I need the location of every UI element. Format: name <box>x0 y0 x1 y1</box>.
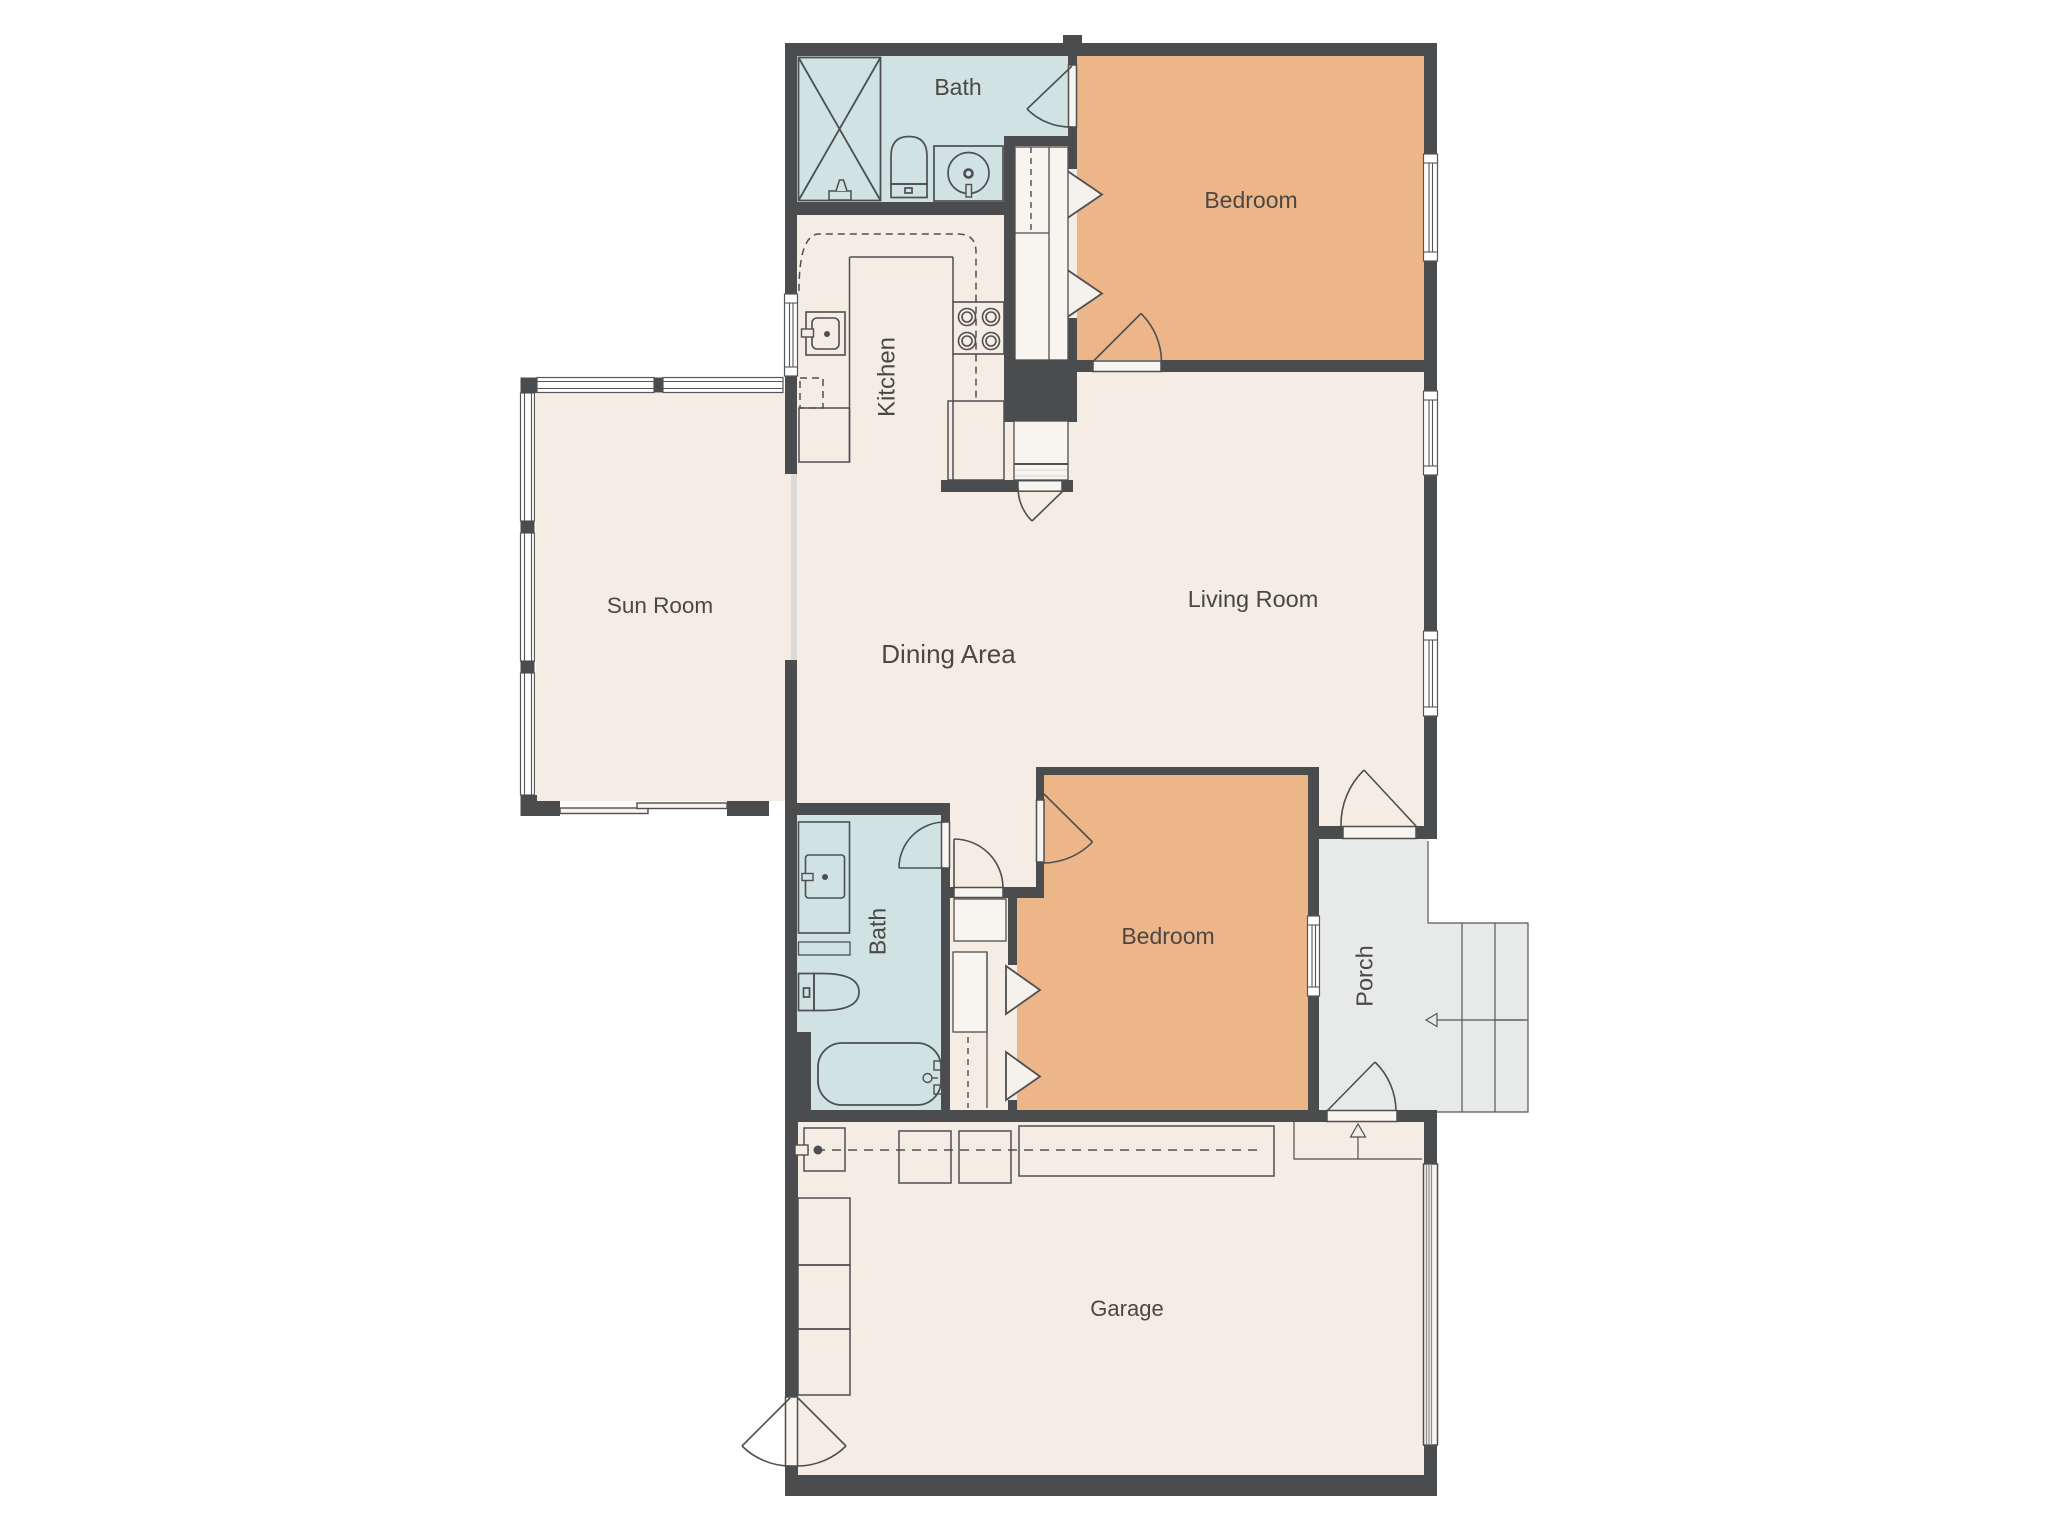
svg-text:Living Room: Living Room <box>1188 586 1319 612</box>
svg-text:Bedroom: Bedroom <box>1204 187 1297 213</box>
svg-text:Sun Room: Sun Room <box>607 593 713 618</box>
svg-text:Garage: Garage <box>1090 1296 1163 1321</box>
svg-text:Bedroom: Bedroom <box>1121 923 1214 949</box>
svg-text:Bath: Bath <box>934 74 981 100</box>
svg-text:Porch: Porch <box>1352 945 1378 1006</box>
svg-text:Dining Area: Dining Area <box>881 639 1016 669</box>
svg-text:Bath: Bath <box>865 908 891 955</box>
svg-text:Kitchen: Kitchen <box>874 337 901 417</box>
